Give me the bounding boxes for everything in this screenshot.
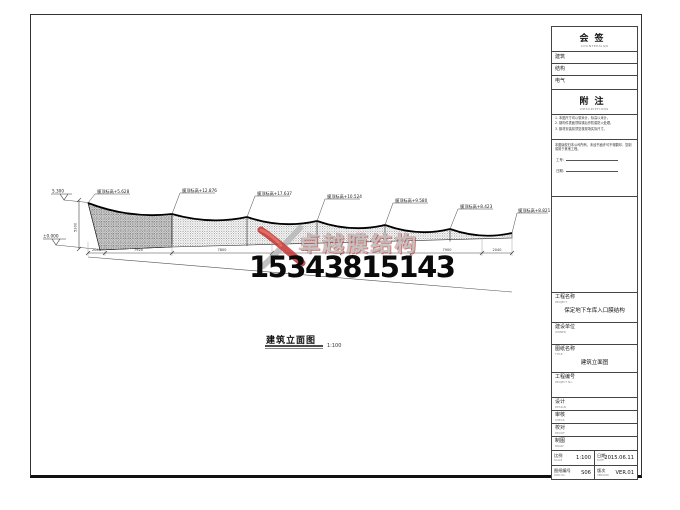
phone-watermark: 15343815143 xyxy=(249,250,454,284)
dwgno-sub: DWG No. xyxy=(554,474,566,477)
dim-1: 2040 xyxy=(92,248,101,252)
project-value: 保定地下车库入口膜结构 xyxy=(552,306,637,314)
level-markers: 5.300 ±0.000 5300 xyxy=(43,189,100,252)
owner-sub: OWNER xyxy=(555,331,637,334)
peak-label-5: 膜顶标高+9.580 xyxy=(395,197,428,204)
dim-2: 7920 xyxy=(134,248,143,252)
peak-label-2: 膜顶标高+12.876 xyxy=(182,187,217,194)
countersign-row-label: 结构 xyxy=(555,65,637,72)
sign-sub: PROOF xyxy=(555,432,637,435)
notes-statement: 本图版权归本公司所有，未经书面许可不得翻印、复制或用于其他工程。 xyxy=(555,143,634,151)
dim-7: 2040 xyxy=(493,248,502,252)
sign-row-draw: 制图DRAW xyxy=(551,436,638,451)
scale-cell: 比例 SCALE 1:100 xyxy=(552,451,595,465)
level-bottom-value: ±0.000 xyxy=(43,234,59,239)
peak-label-1: 膜顶标高+5.628 xyxy=(97,188,130,195)
project-sub: PROJECT xyxy=(555,301,637,304)
note-item: 3. 膜材安装前须复核现场实际尺寸。 xyxy=(555,127,635,131)
drawing-name-box: 图纸名称TITLE 建筑立面图 xyxy=(551,344,638,373)
vertical-dim-value: 5300 xyxy=(74,222,78,232)
drawing-sheet: 膜顶标高+5.628 膜顶标高+12.876 膜顶标高+17.637 膜顶标高+… xyxy=(0,0,680,510)
drawing-name-value: 建筑立面图 xyxy=(552,358,637,366)
sign-row-check: 审核CHECK xyxy=(551,410,638,424)
sign-sub: CHECK xyxy=(555,419,637,422)
notes-sub: DESCRIPTIONS xyxy=(552,107,637,111)
project-no-sub: PROJECT No. xyxy=(555,381,637,384)
note-date-blank xyxy=(566,167,618,172)
dim-3: 7800 xyxy=(218,248,227,252)
drawing-title-scale: 1:100 xyxy=(327,343,341,349)
version-sub: VERSION xyxy=(597,474,609,477)
sign-sub: DESIGN xyxy=(555,406,637,409)
sign-sub: DRAW xyxy=(555,445,637,448)
dwgno-value: S06 xyxy=(581,470,591,476)
sign-row-design: 设计DESIGN xyxy=(551,397,638,411)
notes-title: 附注 xyxy=(552,94,637,107)
countersign-row-label: 建筑 xyxy=(555,53,637,60)
note-item: 1. 本图尺寸均以毫米计，标高以米计。 xyxy=(555,116,635,120)
peak-label-3: 膜顶标高+17.637 xyxy=(257,190,292,197)
countersign-row-label: 电气 xyxy=(555,77,637,84)
dwgno-version-row: 图纸编号 DWG No. S06 版次 VERSION VER.01 xyxy=(551,465,638,480)
peak-label-6: 膜顶标高+8.423 xyxy=(460,203,493,210)
drawing-name-sub: TITLE xyxy=(555,353,637,356)
countersign-row-elec: 电气 xyxy=(551,75,638,90)
project-no-box: 工程编号PROJECT No. xyxy=(551,372,638,398)
countersign-sub: COUNTERSIGN xyxy=(552,44,637,48)
owner-box: 建设单位OWNER xyxy=(551,322,638,345)
job-no-blank xyxy=(566,156,618,161)
scale-sub: SCALE xyxy=(554,459,562,462)
date-cell: 日期 DATE 2015.06.11 xyxy=(595,451,637,465)
note-date-label: 日期： xyxy=(556,169,566,173)
job-no-label: 工号： xyxy=(556,158,566,162)
level-top-value: 5.300 xyxy=(52,189,64,194)
notes-list: 1. 本图尺寸均以毫米计，标高以米计。 2. 钢构件表面须除锈后作防腐防火处理。… xyxy=(551,114,638,140)
membrane-left-block xyxy=(88,203,172,250)
dwgno-cell: 图纸编号 DWG No. S06 xyxy=(552,466,595,479)
notes-header: 附注 DESCRIPTIONS xyxy=(551,89,638,115)
version-value: VER.01 xyxy=(616,470,635,476)
stamp-box xyxy=(551,196,638,293)
peak-label-4: 膜顶标高+10.524 xyxy=(327,193,362,200)
notes-statement-box: 本图版权归本公司所有，未经书面许可不得翻印、复制或用于其他工程。 工号： 日期： xyxy=(551,139,638,197)
scale-date-row: 比例 SCALE 1:100 日期 DATE 2015.06.11 xyxy=(551,450,638,466)
peak-label-7: 膜顶标高+8.821 xyxy=(518,207,551,214)
project-name-box: 工程名称PROJECT 保定地下车库入口膜结构 xyxy=(551,292,638,323)
date-sub: DATE xyxy=(597,459,604,462)
countersign-title: 会签 xyxy=(552,31,637,44)
scale-value: 1:100 xyxy=(576,455,591,461)
drawing-title: 建筑立面图 1:100 xyxy=(265,334,341,349)
note-item: 2. 钢构件表面须除锈后作防腐防火处理。 xyxy=(555,121,635,125)
date-value: 2015.06.11 xyxy=(604,455,634,461)
countersign-header: 会签 COUNTERSIGN xyxy=(551,26,638,52)
drawing-title-text: 建筑立面图 xyxy=(266,334,316,346)
version-cell: 版次 VERSION VER.01 xyxy=(595,466,637,479)
sign-row-proof: 校对PROOF xyxy=(551,423,638,437)
